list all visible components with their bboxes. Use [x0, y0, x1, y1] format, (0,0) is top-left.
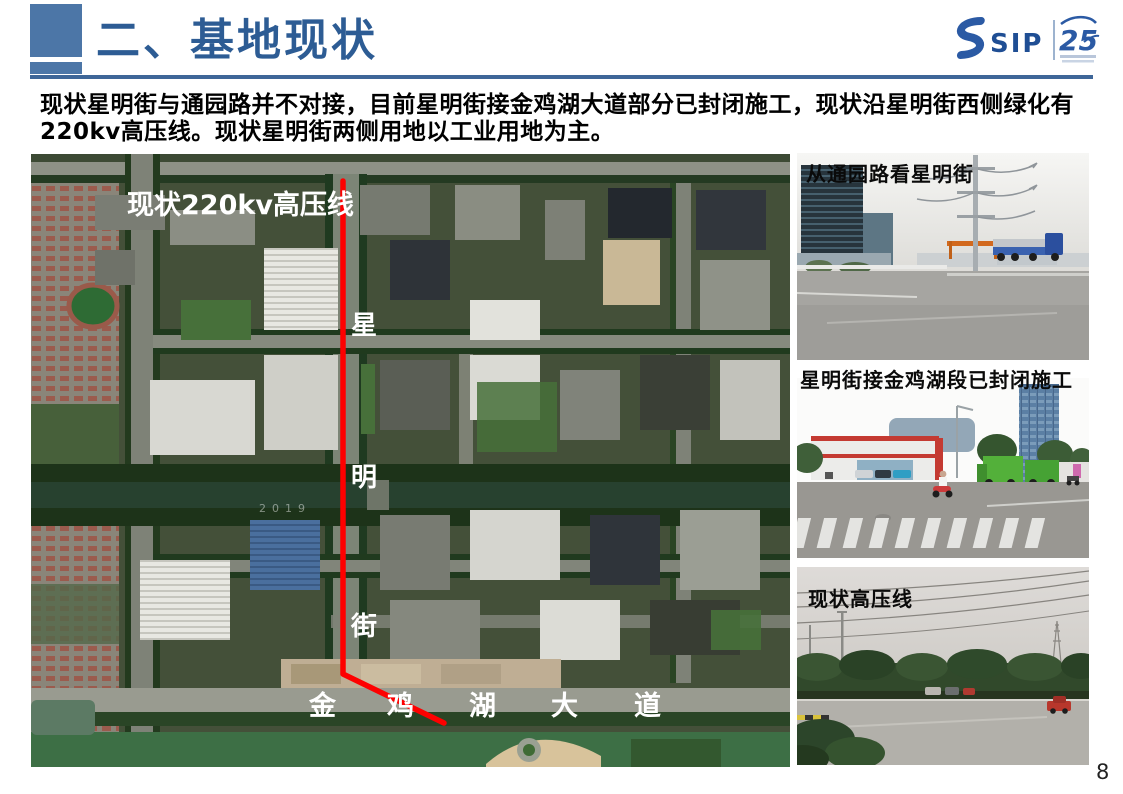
header-decoration-bar	[30, 62, 82, 74]
site-map: 现状220kv高压线 星 明 街 金 鸡 湖 大 道 2019	[31, 154, 790, 767]
photo-2-caption: 星明街接金鸡湖段已封闭施工	[800, 364, 1073, 393]
logo-smalltext-bar2	[1062, 60, 1094, 63]
street-label-char-3: 街	[350, 612, 377, 642]
logo-25-text: 25	[1059, 24, 1098, 57]
photo-1-caption: 从通园路看星明街	[806, 158, 974, 187]
avenue-label-char-4: 大	[551, 691, 578, 722]
logo-s-icon	[957, 21, 983, 55]
sip-logo-art: SIP 25	[948, 12, 1100, 66]
satellite-map-image: 现状220kv高压线 星 明 街 金 鸡 湖 大 道 2019	[31, 154, 790, 767]
intro-paragraph: 现状星明街与通园路并不对接，目前星明街接金鸡湖大道部分已封闭施工，现状沿星明街西…	[40, 92, 1096, 146]
slide: 二、基地现状 SIP 25 现状星明街与通园路并不对接，目前星明街接金鸡湖大道部…	[0, 0, 1123, 794]
photo-3-caption: 现状高压线	[808, 583, 913, 612]
site-photo-2	[797, 378, 1089, 558]
logo-smalltext-bar	[1060, 55, 1096, 58]
powerline-label: 现状220kv高压线	[127, 189, 354, 221]
avenue-label-char-5: 道	[634, 690, 661, 722]
street-label-char-2: 明	[351, 463, 377, 493]
page-title: 二、基地现状	[96, 4, 378, 68]
header-decoration-square	[30, 4, 82, 57]
header-divider	[30, 75, 1093, 79]
avenue-label-char-3: 湖	[469, 691, 496, 722]
logo-sip-text: SIP	[990, 29, 1043, 59]
logo-swoosh-icon	[1061, 17, 1096, 24]
avenue-label-char-2: 鸡	[386, 691, 414, 722]
avenue-label-char-1: 金	[308, 690, 337, 722]
page-number: 8	[1096, 760, 1109, 784]
photo-2-image	[797, 378, 1089, 558]
sip-logo: SIP 25	[948, 12, 1100, 66]
imagery-watermark: 2019	[259, 502, 311, 515]
street-label-char-1: 星	[351, 311, 377, 341]
